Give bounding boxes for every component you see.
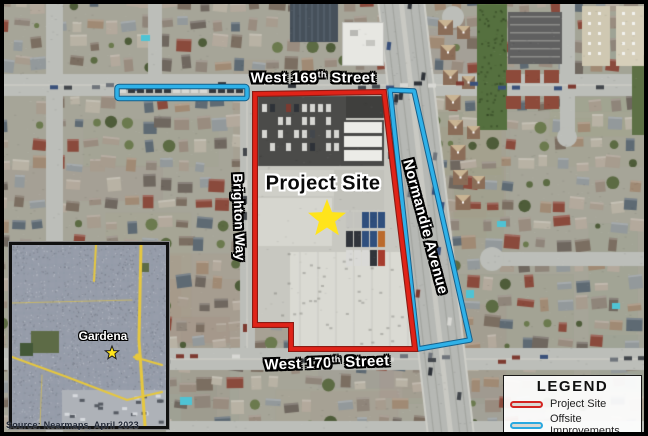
- legend-panel: LEGEND Project Site Offsite Improvements: [503, 375, 642, 436]
- street-label-west-169th: West 169th Street: [250, 70, 375, 87]
- star-marker: [308, 199, 346, 235]
- legend-swatch-project-site: [510, 401, 543, 408]
- legend-label-project-site: Project Site: [550, 398, 606, 410]
- offsite-169th-outline-edge: [117, 87, 247, 99]
- aerial-map-figure: West 169th Street West 170th Street Brig…: [0, 0, 648, 436]
- inset-city-label: Gardena: [79, 329, 128, 343]
- street-label-brighton-way: Brighton Way: [230, 173, 248, 261]
- legend-swatch-offsite-improvements: [510, 422, 543, 429]
- project-site-label: Project Site: [266, 173, 381, 196]
- inset-star-marker: [105, 346, 118, 359]
- legend-label-offsite-improvements: Offsite Improvements: [550, 413, 635, 436]
- source-note: Source: Nearmaps, April 2023: [6, 420, 139, 430]
- inset-locator-map: Gardena: [9, 242, 169, 429]
- legend-title: LEGEND: [510, 378, 635, 395]
- legend-item-offsite-improvements: Offsite Improvements: [510, 413, 635, 436]
- legend-item-project-site: Project Site: [510, 398, 635, 410]
